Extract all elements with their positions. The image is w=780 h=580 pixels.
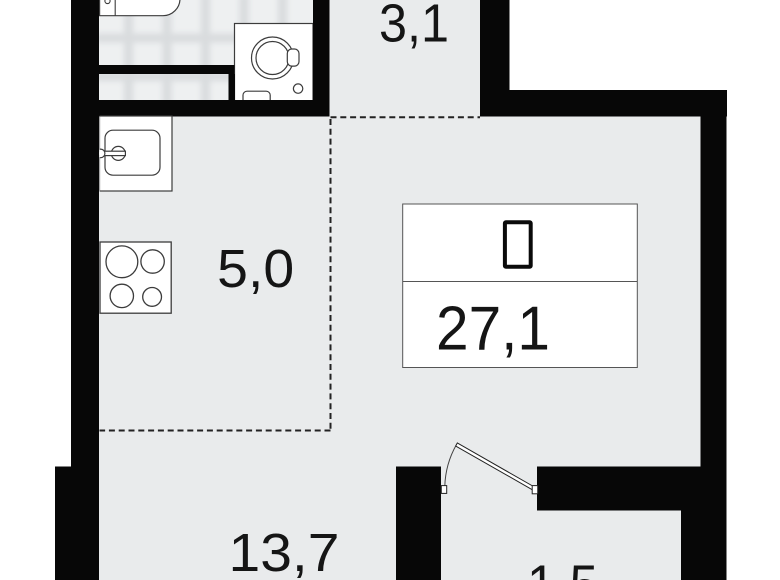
- svg-text:3,1: 3,1: [379, 0, 449, 54]
- svg-text:1,5: 1,5: [527, 555, 598, 580]
- svg-text:27,1: 27,1: [436, 294, 550, 363]
- svg-text:5,0: 5,0: [217, 239, 294, 299]
- svg-text:13,7: 13,7: [229, 523, 340, 580]
